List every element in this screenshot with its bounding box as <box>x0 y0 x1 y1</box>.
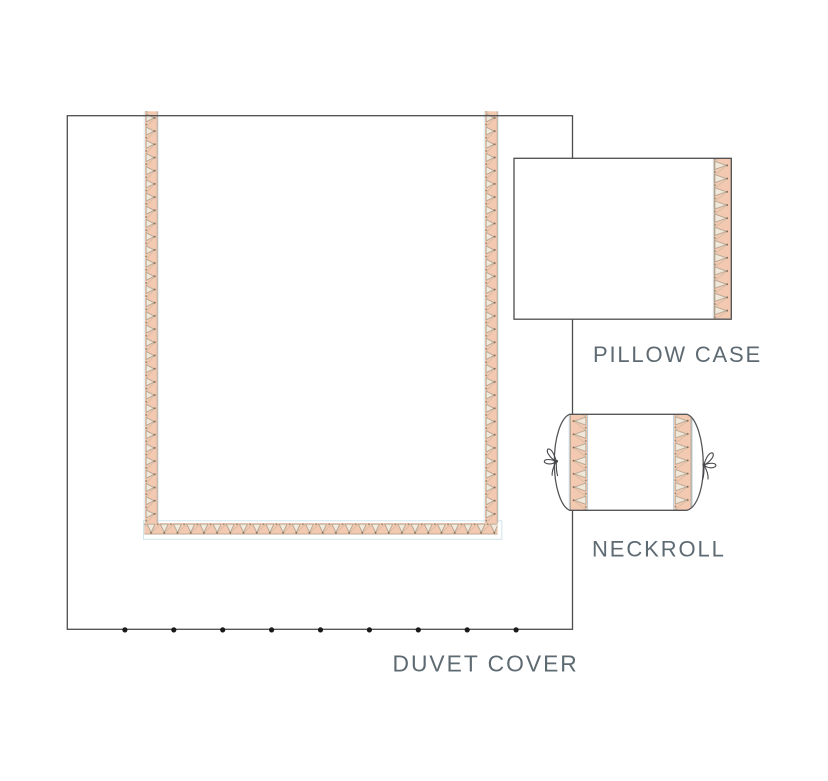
svg-text:DUVET COVER: DUVET COVER <box>393 651 579 677</box>
svg-text:PILLOW CASE: PILLOW CASE <box>593 342 762 367</box>
svg-text:NECKROLL: NECKROLL <box>592 537 726 562</box>
